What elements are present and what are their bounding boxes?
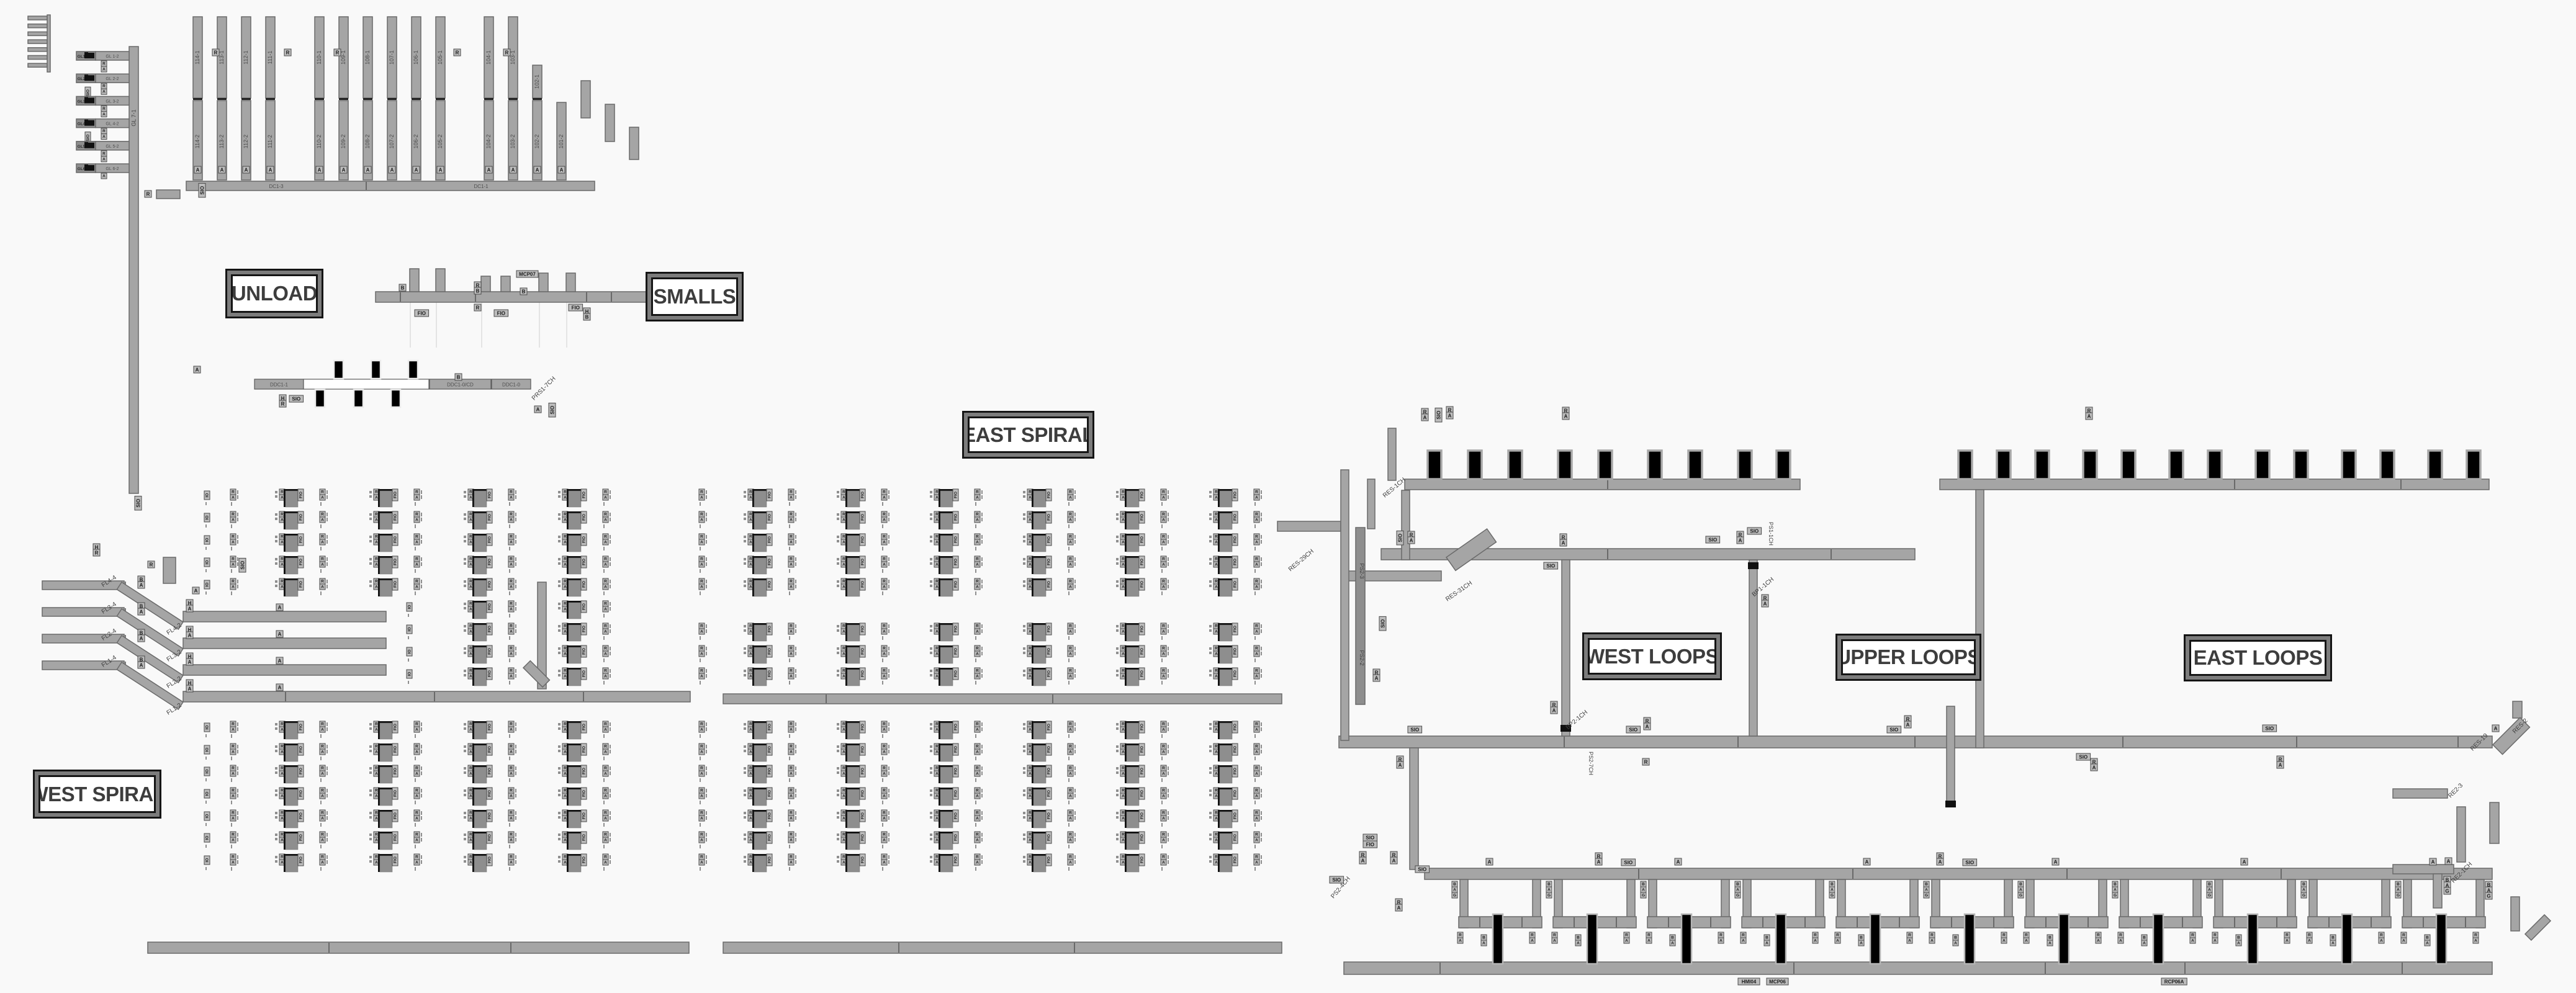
badge-text: R — [232, 766, 235, 771]
cell-dash — [205, 734, 207, 737]
cell-dash — [744, 794, 746, 796]
badge-text: A — [842, 817, 845, 821]
badge-text: FIO — [1140, 626, 1145, 632]
cell-block — [474, 745, 487, 762]
cell-dash — [837, 585, 839, 587]
train-marker — [1777, 451, 1790, 479]
badge-text: A — [1215, 675, 1218, 679]
badge-a: A — [1254, 584, 1259, 590]
cell-dash — [744, 856, 746, 858]
cell-dash — [275, 723, 277, 726]
cell-dash — [930, 771, 932, 774]
badge-a: A — [508, 771, 514, 776]
badge-text: A — [366, 168, 370, 173]
cell-border — [472, 788, 488, 789]
badge-text: R — [1255, 722, 1258, 727]
cell-dash — [515, 860, 516, 864]
badge-text: A — [976, 585, 979, 590]
cell-border — [752, 578, 768, 580]
badge-r: R — [788, 788, 794, 793]
cell-dash — [1261, 585, 1262, 588]
badge-text: A — [469, 838, 472, 843]
cell-dash — [930, 513, 932, 516]
badge-text: R — [1069, 513, 1072, 517]
cell-dash — [1161, 502, 1163, 506]
badge-text: R — [1069, 647, 1072, 651]
badge-text: A — [1122, 496, 1125, 500]
cell-block — [1220, 833, 1232, 850]
cell-border — [284, 765, 286, 783]
badge-r: R — [699, 854, 705, 860]
cell-dash — [558, 540, 561, 542]
cell-border — [845, 645, 847, 663]
fl-bar — [183, 665, 386, 675]
badge-fio: FIO — [298, 854, 304, 866]
badge-a: A — [1395, 904, 1402, 911]
badge-text: A — [375, 563, 378, 567]
badge-fio: FIO — [953, 668, 958, 680]
badge-a: A — [1254, 562, 1259, 567]
badge-text: FIO — [861, 626, 865, 632]
badge-text: A — [1255, 630, 1258, 634]
badge-a: A — [2091, 764, 2097, 771]
cell-dash — [1168, 518, 1169, 521]
badge-text: R — [935, 811, 939, 816]
cell-dash — [515, 789, 516, 793]
badge-text: B — [401, 285, 405, 291]
track-label: 104-1 — [485, 50, 492, 65]
cell-dash — [558, 860, 561, 863]
badge-text: FIO — [861, 746, 865, 753]
badge-text: A — [700, 630, 703, 634]
comb-stub — [629, 127, 639, 160]
cell-border — [939, 668, 954, 670]
track-label: PS2-7CH — [1588, 752, 1594, 775]
badge-r: R — [508, 854, 514, 860]
cell-dash — [610, 811, 611, 815]
cell-dash — [1161, 569, 1163, 573]
cell-dash — [1209, 580, 1212, 583]
badge-sio: SIO — [1363, 834, 1377, 841]
cell-block — [847, 833, 860, 850]
badge-a: A — [101, 173, 107, 179]
cell-dash — [888, 647, 889, 650]
badge-text: FIO — [488, 581, 492, 588]
badge-a: A — [881, 816, 887, 821]
badge-text: B — [1765, 936, 1768, 940]
badge-text: A — [604, 608, 607, 612]
badge-g: G — [1641, 892, 1646, 898]
cell-dash — [706, 647, 707, 650]
cell-dash — [789, 524, 790, 528]
cell-dash — [1074, 789, 1076, 793]
cell-border — [1218, 810, 1233, 812]
badge-text: A — [1836, 939, 1839, 943]
badge-a: A — [603, 793, 608, 799]
badge-b: B — [520, 288, 527, 295]
cell-border — [1125, 765, 1127, 783]
badge-text: R — [510, 669, 513, 673]
badge-r: R — [508, 578, 514, 584]
badge-a: A — [1161, 793, 1166, 799]
badge-text: R — [700, 811, 703, 816]
badge-text: FIO — [394, 581, 398, 588]
cell-border — [1218, 489, 1220, 507]
cell-border — [1032, 623, 1047, 625]
badge-fio: FIO — [1046, 489, 1052, 501]
badge-text: A — [1029, 630, 1032, 634]
cell-dash — [237, 490, 238, 494]
badge-a: A — [1254, 771, 1259, 776]
cell-dash — [1161, 591, 1163, 595]
cell-dash — [320, 801, 322, 804]
cell-block — [474, 625, 487, 641]
region-label-text: UNLOAD — [231, 274, 318, 313]
badge-r: R — [1161, 623, 1166, 629]
badge-text: R — [469, 580, 472, 584]
cell-dash — [930, 536, 932, 538]
badge-b: B — [1670, 935, 1675, 940]
track-piece — [163, 557, 176, 583]
badge-sio: SIO — [1626, 726, 1641, 733]
badge-g: G — [1924, 892, 1929, 898]
cell-border — [284, 578, 299, 580]
badge-r: R — [788, 721, 794, 727]
cell-border — [284, 556, 286, 574]
badge-text: R — [883, 669, 886, 673]
gl-row-name: GL6 — [78, 167, 86, 171]
badge-text: FIO — [1233, 812, 1238, 819]
cell-dash — [888, 495, 889, 499]
badge-text: IO — [205, 814, 210, 819]
badge-sio: SIO — [135, 496, 142, 510]
badge-a: A — [603, 749, 608, 755]
cell-dash — [795, 624, 796, 628]
cell-dash — [930, 745, 932, 748]
cell-dash — [1023, 723, 1025, 726]
cell-block — [940, 647, 953, 663]
cell-dash — [888, 557, 889, 561]
badge-fio: FIO — [1046, 578, 1052, 590]
loop-track-vertical — [1947, 706, 1955, 804]
cell-dash — [1209, 727, 1212, 730]
badge-text: R — [214, 50, 218, 56]
cell-border — [845, 765, 861, 767]
badge-a: A — [2052, 858, 2059, 865]
badge-text: R — [1029, 490, 1032, 495]
cell-block — [847, 789, 860, 806]
badge-fio: FIO — [298, 534, 304, 546]
badge-r: R — [1161, 788, 1166, 793]
cell-border — [472, 489, 474, 507]
cell-dash — [610, 607, 611, 611]
badge-a: A — [558, 166, 565, 173]
cell-dash — [981, 816, 983, 820]
cell-dash — [320, 757, 322, 760]
cell-dash — [421, 562, 422, 566]
badge-text: FIO — [861, 670, 865, 677]
cell-border — [567, 623, 569, 641]
cell-dash — [981, 855, 983, 859]
badge-fio: FIO — [487, 601, 492, 613]
badge-r: R — [603, 511, 608, 517]
badge-text: R — [564, 833, 567, 837]
badge-text: R — [842, 647, 845, 651]
badge-text: R — [469, 855, 472, 860]
badge-text: A — [1122, 794, 1125, 799]
badge-text: R — [564, 745, 567, 749]
cell-dash — [369, 723, 372, 726]
cell-dash — [205, 801, 207, 804]
cell-dash — [509, 524, 510, 528]
cell-border — [1032, 578, 1047, 580]
train-marker — [315, 390, 325, 407]
badge-text: A — [321, 772, 324, 776]
cell-dash — [1209, 750, 1212, 752]
badge-r: R — [1068, 578, 1073, 584]
cell-dash — [610, 860, 611, 864]
cell-block — [286, 723, 298, 739]
cell-block — [474, 723, 487, 739]
badge-text: A — [1215, 838, 1218, 843]
fl-bar — [183, 611, 386, 622]
badge-text: R — [415, 745, 418, 749]
cell-dash — [275, 518, 277, 520]
cell-dash — [237, 722, 238, 726]
train-marker — [2256, 451, 2269, 479]
cell-border — [1032, 489, 1034, 507]
cell-dash — [1116, 767, 1119, 770]
cell-dash — [789, 636, 790, 640]
badge-a: A — [1068, 539, 1073, 545]
cell-dash — [1209, 536, 1212, 538]
spiral-bar — [723, 694, 1282, 704]
comb-stub — [581, 81, 590, 118]
cell-border — [939, 534, 954, 536]
cell-dash — [610, 789, 611, 793]
cell-border — [1218, 578, 1220, 596]
badge-r: R — [508, 832, 514, 837]
cell-border — [1125, 854, 1140, 856]
loco-icon — [84, 164, 88, 167]
cell-dash — [706, 794, 707, 798]
badge-r: R — [230, 534, 236, 539]
badge-text: R — [281, 766, 284, 771]
cell-dash — [981, 674, 983, 678]
cell-border — [567, 623, 582, 625]
badge-text: A — [883, 772, 886, 776]
badge-sio: SIO — [1435, 408, 1442, 422]
badge-text: A — [1410, 538, 1413, 544]
loop-track-vertical — [1562, 560, 1570, 736]
badge-a: A — [2492, 725, 2499, 732]
badge-text: R — [321, 833, 324, 837]
cell-dash — [369, 491, 372, 493]
cell-dash — [795, 557, 796, 561]
cell-dash — [408, 636, 409, 639]
cell-dash — [1074, 629, 1076, 633]
cell-border — [1218, 668, 1220, 686]
badge-text: A — [469, 585, 472, 590]
cell-dash — [1261, 789, 1262, 793]
cell-dash — [610, 562, 611, 566]
badge-text: A — [564, 541, 567, 545]
cell-dash — [1074, 580, 1076, 583]
badge-text: G — [2487, 894, 2490, 899]
cell-dash — [1254, 524, 1256, 528]
badge-r: R — [603, 721, 608, 727]
badge-text: R — [321, 745, 324, 749]
cell-block — [1034, 856, 1046, 872]
cell-dash — [464, 838, 466, 840]
badge-fio: FIO — [1139, 854, 1145, 866]
badge-fio: FIO — [860, 623, 865, 635]
cell-dash — [975, 845, 976, 848]
loop-track-vertical — [1976, 490, 1984, 748]
cell-dash — [464, 771, 466, 774]
badge-text: R — [790, 557, 793, 562]
cell-block — [754, 670, 767, 686]
badge-fio: FIO — [392, 578, 398, 590]
cell-dash — [744, 629, 746, 632]
cell-dash — [700, 867, 701, 871]
badge-text: A — [1162, 541, 1165, 545]
badge-text: R — [1215, 513, 1218, 517]
badge-a: A — [485, 166, 492, 173]
cell-dash — [744, 491, 746, 493]
cell-dash — [882, 569, 883, 573]
cell-border — [1218, 744, 1220, 762]
badge-text: B — [2426, 936, 2429, 940]
cell-dash — [888, 490, 889, 494]
smalls-bar — [376, 292, 651, 302]
badge-text: A — [1122, 518, 1125, 523]
badge-a: A — [138, 608, 145, 615]
badge-text: A — [564, 652, 567, 657]
badge-text: R — [469, 535, 472, 539]
badge-text: FIO — [768, 812, 772, 819]
badge-text: R — [935, 833, 939, 837]
badge-text: FIO — [954, 626, 958, 632]
badge-text: R — [1069, 745, 1072, 749]
badge-text: A — [700, 861, 703, 865]
badge-io: IO — [407, 670, 412, 678]
track-label: 102-1 — [534, 74, 540, 89]
badge-text: R — [1122, 811, 1125, 816]
cell-dash — [882, 823, 883, 827]
badge-text: A — [1069, 541, 1072, 545]
badge-text: FIO — [299, 834, 304, 841]
cell-dash — [1068, 658, 1070, 662]
badge-text: A — [1482, 941, 1485, 946]
cell-dash — [1209, 856, 1212, 858]
cell-dash — [700, 591, 701, 595]
badge-a: A — [320, 562, 325, 567]
badge-text: A — [564, 817, 567, 821]
badge-fio: FIO — [415, 310, 429, 317]
badge-text: FIO — [1140, 790, 1145, 797]
cell-dash — [603, 823, 605, 827]
cell-border — [567, 489, 582, 491]
badge-fio: FIO — [767, 788, 772, 799]
badge-text: R — [1162, 557, 1165, 562]
cell-block — [940, 812, 953, 828]
cell-dash — [509, 867, 510, 871]
badge-a: A — [881, 539, 887, 545]
cell-dash — [275, 513, 277, 516]
cell-dash — [1074, 652, 1076, 655]
cell-dash — [558, 513, 561, 516]
badge-text: B — [2302, 883, 2305, 887]
badge-text: A — [281, 728, 284, 732]
cell-dash — [1074, 513, 1076, 516]
badge-r: R — [788, 854, 794, 860]
badge-text: A — [415, 518, 418, 523]
cell-dash — [515, 580, 516, 583]
badge-fio: FIO — [298, 721, 304, 733]
loop-track-vertical — [1367, 479, 1375, 529]
cell-dash — [744, 833, 746, 836]
badge-r: R — [975, 489, 980, 495]
badge-text: R — [232, 722, 235, 727]
badge-text: A — [935, 750, 939, 755]
badge-text: R — [469, 624, 472, 629]
cell-border — [1218, 511, 1220, 529]
cell-block — [1127, 856, 1139, 872]
badge-text: R — [1215, 490, 1218, 495]
badge-fio: FIO — [767, 854, 772, 866]
badge-text: A — [415, 838, 418, 843]
badge-text: FIO — [497, 311, 505, 317]
badge-a: A — [1924, 887, 1929, 892]
badge-a: A — [230, 727, 236, 732]
badge-r: R — [881, 832, 887, 837]
badge-text: A — [415, 861, 418, 865]
badge-a: A — [2330, 940, 2336, 946]
badge-r: R — [975, 668, 980, 673]
badge-r: R — [699, 765, 705, 771]
badge-text: A — [245, 168, 248, 173]
badge-r: R — [603, 810, 608, 816]
cell-border — [1218, 623, 1233, 625]
cell-border — [1032, 810, 1034, 828]
badge-text: G — [1925, 894, 1928, 898]
cell-dash — [1261, 495, 1262, 499]
cell-dash — [700, 734, 701, 738]
badge-r: R — [1068, 721, 1073, 727]
cell-dash — [1116, 750, 1119, 752]
cell-dash — [558, 585, 561, 587]
cell-dash — [1068, 801, 1070, 804]
badge-fio: FIO — [298, 489, 304, 501]
badge-text: R — [976, 745, 979, 749]
badge-fio: FIO — [298, 556, 304, 568]
badge-r: R — [508, 534, 514, 539]
badge-r: R — [975, 832, 980, 837]
gl-row-name: GL3 — [78, 99, 86, 104]
cell-dash — [1168, 647, 1169, 650]
cell-block — [847, 745, 860, 762]
badge-text: R — [842, 766, 845, 771]
badge-text: A — [976, 675, 979, 679]
cell-dash — [1168, 766, 1169, 770]
cell-dash — [744, 771, 746, 774]
badge-r: R — [1068, 854, 1073, 860]
badge-a: A — [975, 495, 980, 500]
cell-dash — [888, 513, 889, 516]
loop-track-bar — [1405, 479, 1800, 490]
cell-block — [474, 789, 487, 806]
